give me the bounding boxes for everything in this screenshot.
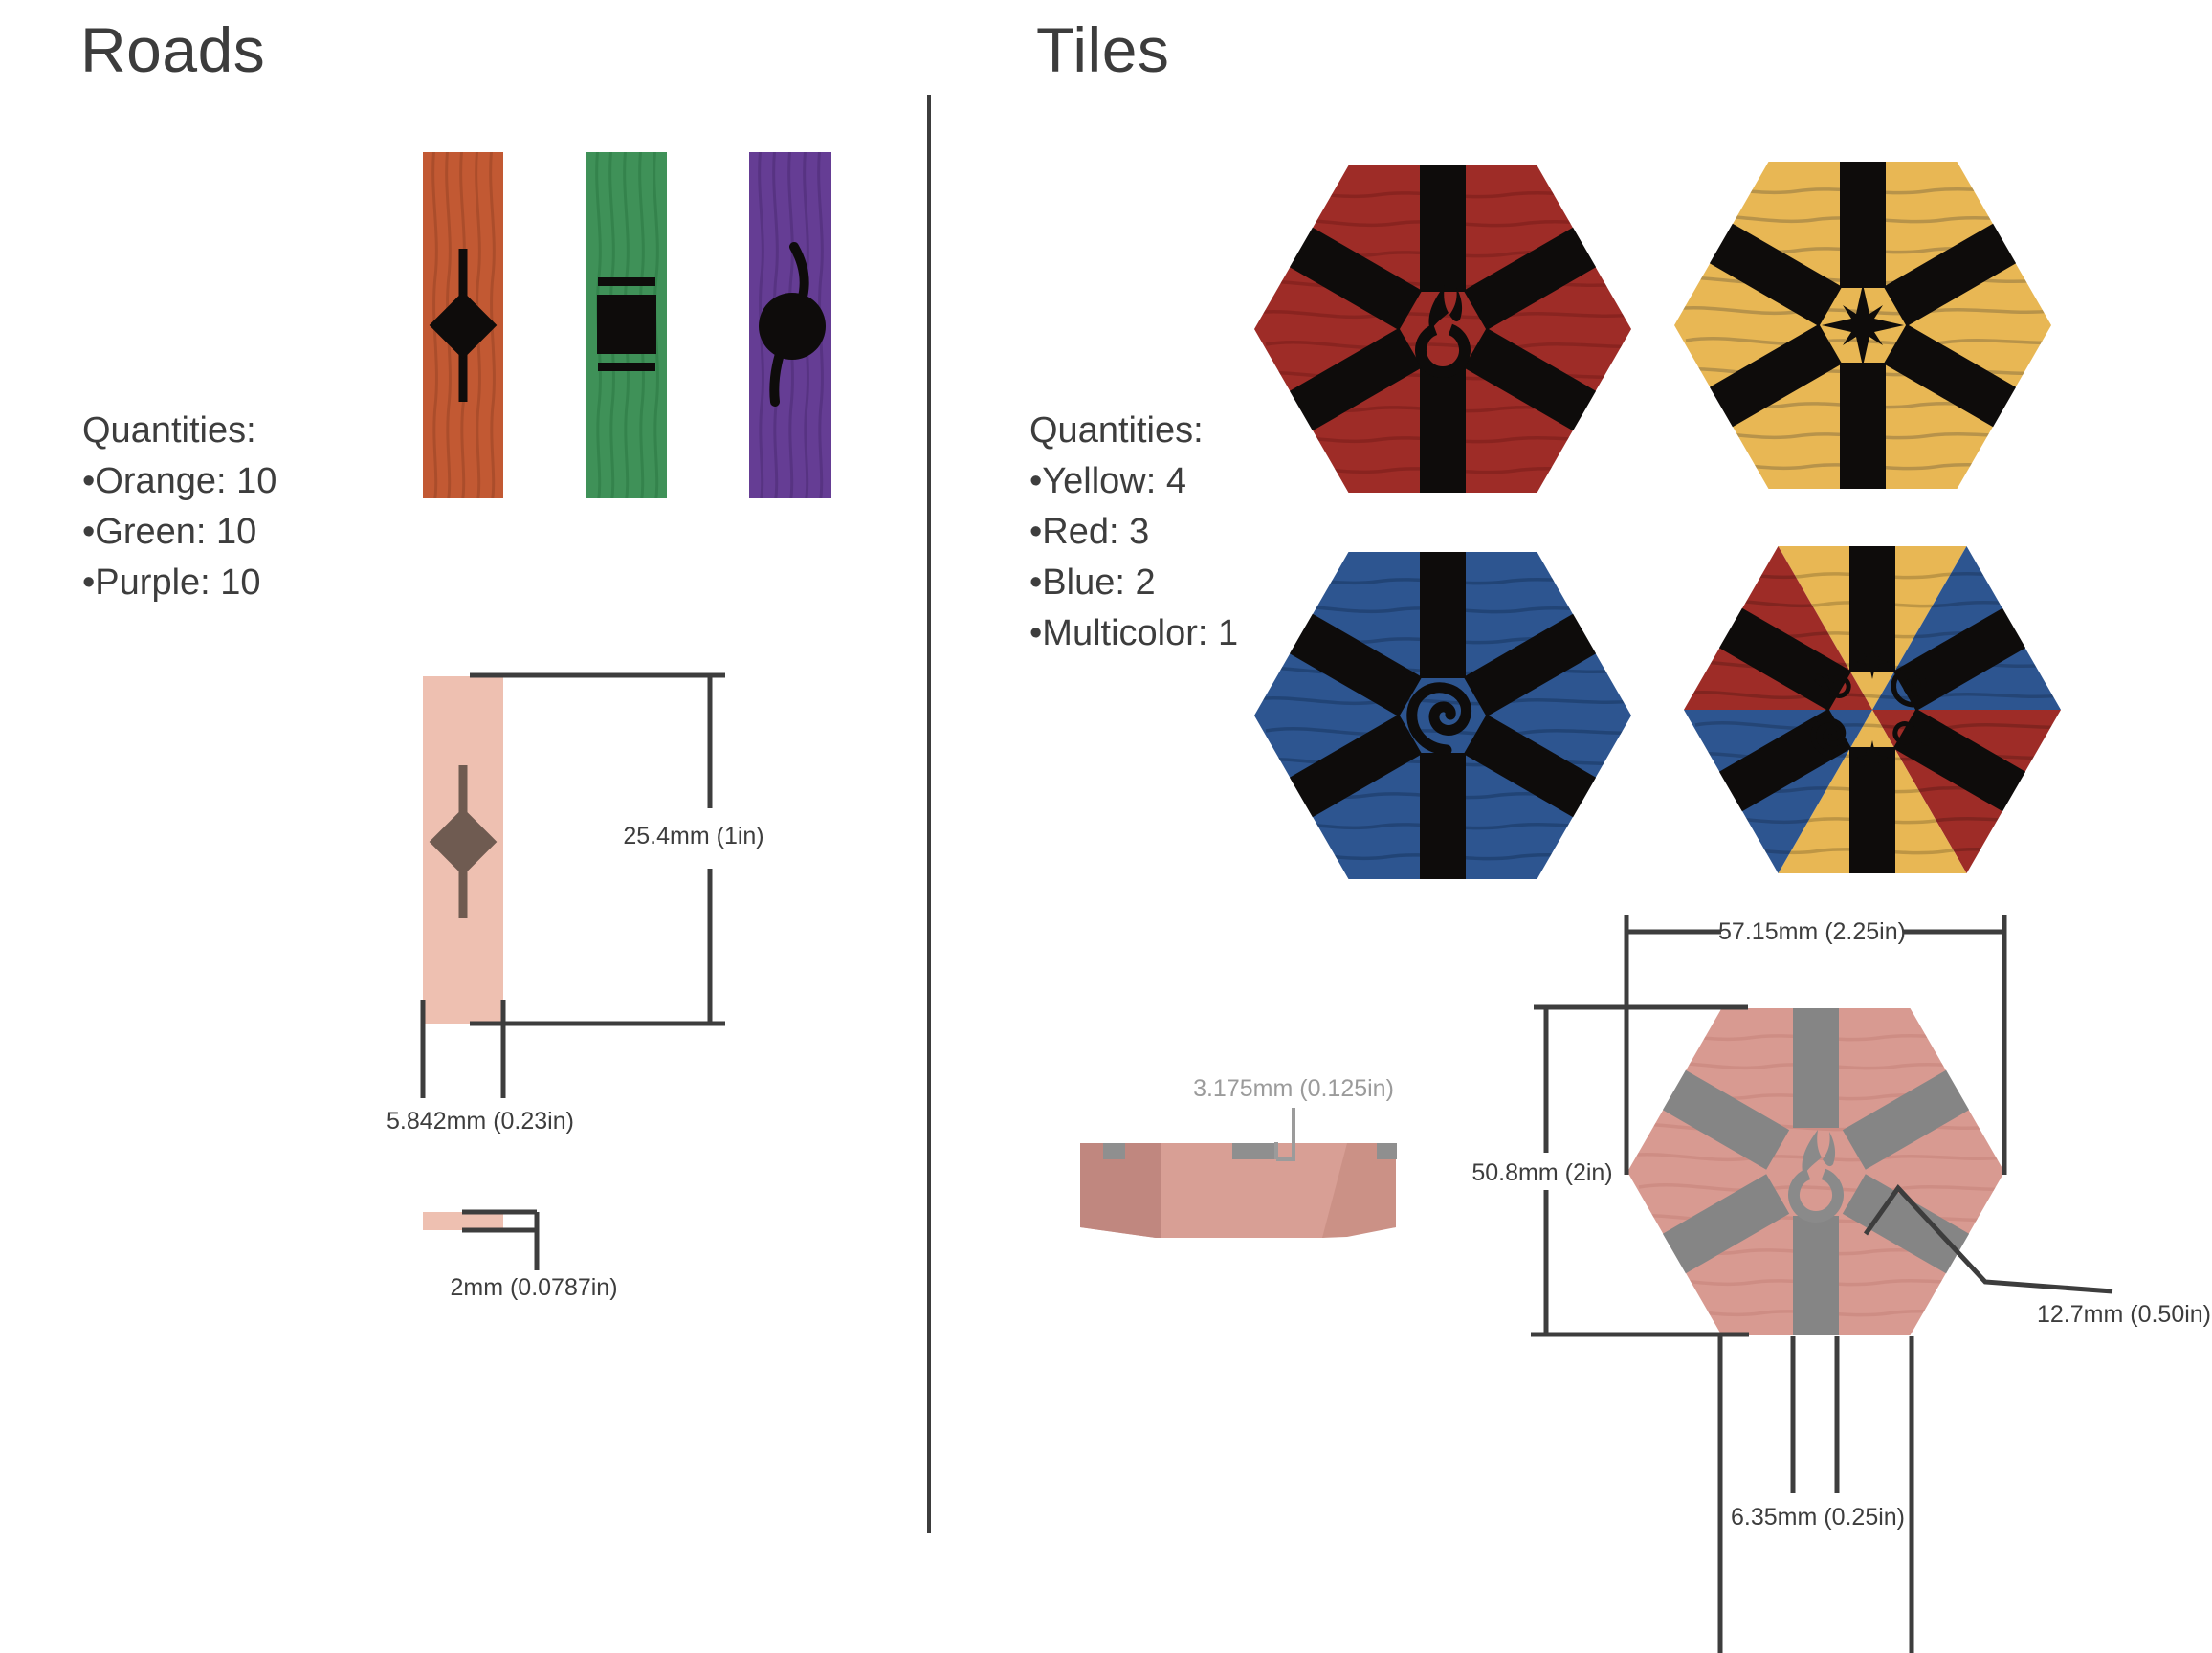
tile-road-depth-label: 3.175mm (0.125in) [1193,1075,1394,1103]
dim-road-width [423,1000,503,1098]
road-thickness-label: 2mm (0.0787in) [450,1274,617,1302]
road-length-label: 25.4mm (1in) [623,823,763,850]
dim-tile-road-width [1793,1336,1837,1493]
tile-height-label: 50.8mm (2in) [1471,1159,1612,1187]
dim-tile-width [1626,915,2004,1175]
leader-tile-road-length [1866,1188,2112,1291]
spec-sheet: Roads Tiles [0,0,2212,1653]
tile-road-length-label: 12.7mm (0.50in) [2037,1301,2211,1329]
dimension-lines-layer [0,0,2212,1653]
tile-width-label: 57.15mm (2.25in) [1718,918,1906,946]
dim-tile-road-depth [1276,1108,1295,1159]
tile-road-width-label: 6.35mm (0.25in) [1731,1504,1905,1532]
road-width-label: 5.842mm (0.23in) [387,1108,574,1135]
dim-road-thickness [462,1212,537,1270]
dim-tile-edge-length [1720,1334,1912,1653]
